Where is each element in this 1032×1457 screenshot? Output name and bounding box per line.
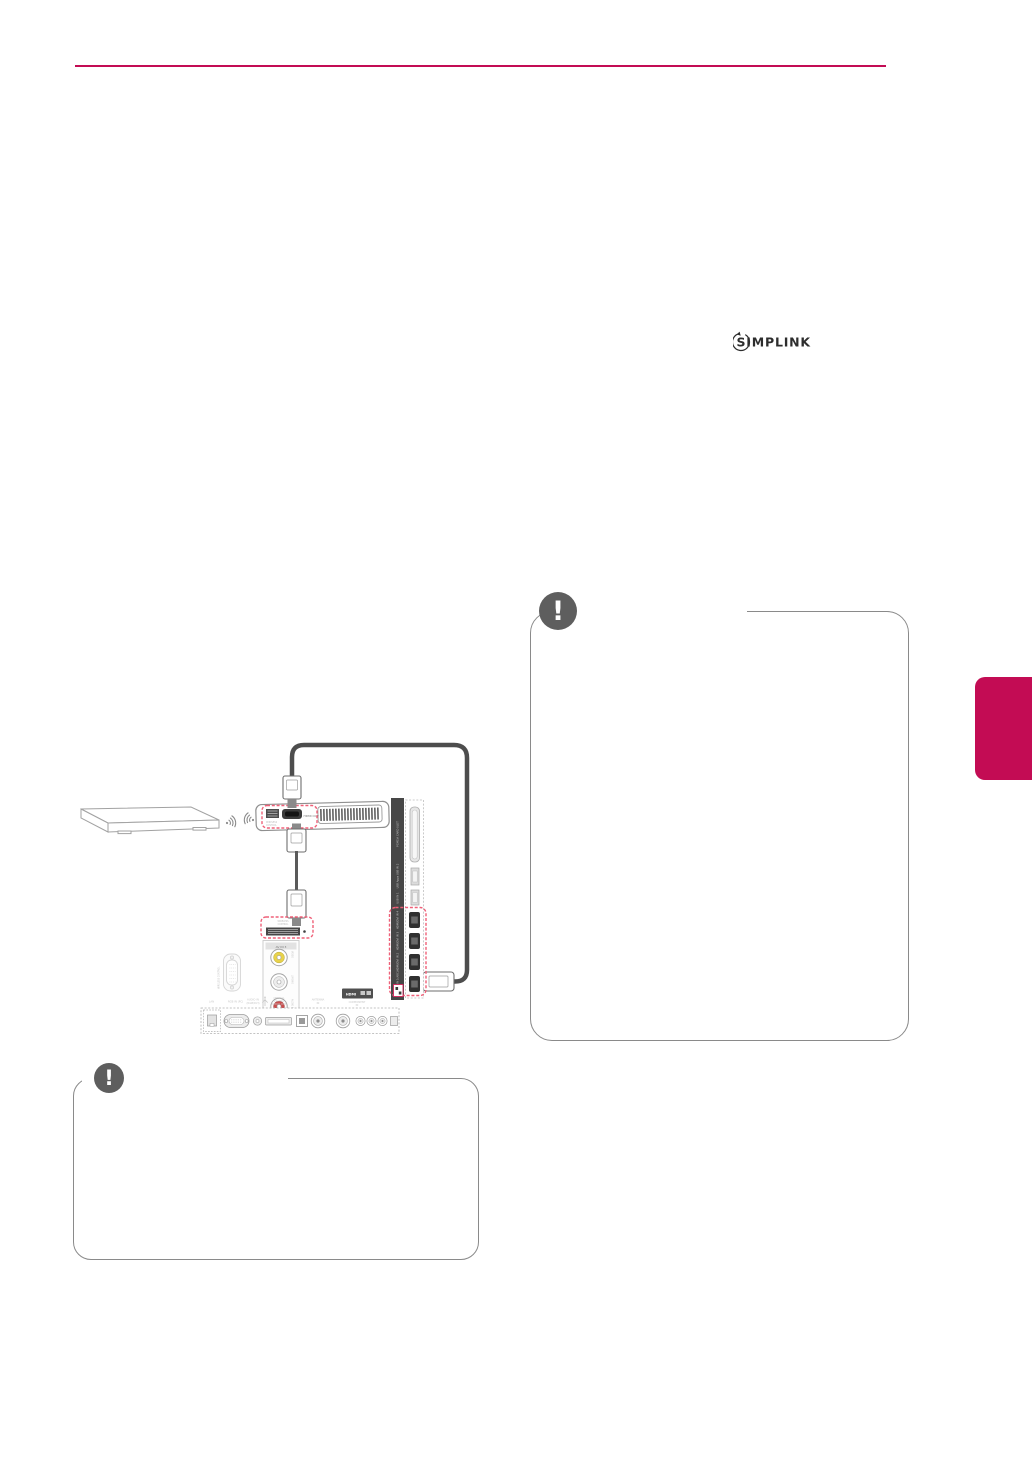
optical-out-port xyxy=(297,1016,308,1027)
wireless-signal-icon xyxy=(224,812,255,828)
component-label-2: IN xyxy=(356,1003,359,1007)
audio-in-label-1: AUDIO IN xyxy=(247,998,259,1002)
hdmi-badge: HDMI xyxy=(342,989,373,999)
lan-label: LAN xyxy=(209,1000,214,1004)
note-box-left xyxy=(73,1078,479,1260)
wireless-control-cable xyxy=(287,824,306,927)
tv-control-label-2: CONTROL xyxy=(278,923,289,926)
dsub-connector: WIRELESS CONTROL xyxy=(218,954,241,991)
component-jacks xyxy=(356,1016,387,1025)
usb-port-1 xyxy=(411,890,419,905)
hdmi4-label: HDMI/DVI IN 4 xyxy=(396,910,400,929)
hdmi-in-3-port xyxy=(409,933,420,949)
connection-diagram: WIRELESS CONTROL HDMI OUT xyxy=(60,730,480,1050)
note-box-right xyxy=(530,611,909,1041)
hdmi-badge-label: HDMI xyxy=(346,993,356,997)
pcmcia-label: PCMCIA CARD SLOT xyxy=(396,821,400,847)
tv-side-panel: PCMCIA CARD SLOT USB Apps USB IN 2 USB I… xyxy=(390,798,427,1000)
audio-in-label-2: (RGB/DVI) xyxy=(247,1001,260,1005)
dsub-label: WIRELESS CONTROL xyxy=(218,966,221,989)
box-control-label-2: CONTROL xyxy=(266,824,277,827)
audio-left-label: L/MONO xyxy=(291,975,294,984)
hdmi2-label: HDMI/DVI IN 2 xyxy=(396,952,400,971)
simplink-text: SIMPLINK xyxy=(737,335,812,350)
optical-label-3: AUDIO OUT xyxy=(272,1002,287,1006)
video-jack-label: VIDEO xyxy=(291,951,294,958)
exclamation-note-icon: ! xyxy=(539,592,577,630)
simplink-logo: SIMPLINK xyxy=(733,329,823,355)
hdmi3-label: HDMI/DVI IN 3 xyxy=(396,931,400,950)
exclamation-note-icon: ! xyxy=(94,1063,124,1093)
manual-page: SIMPLINK xyxy=(0,0,1032,1457)
wireless-media-box: WIRELESS CONTROL HDMI OUT xyxy=(256,801,390,830)
audio-right-label: AUDIO R xyxy=(291,999,294,1009)
hdmi-in-2-port xyxy=(409,954,420,970)
service-slot xyxy=(266,1018,292,1026)
av-in-3-label: AV IN 3 xyxy=(276,945,287,949)
page-ref-icon xyxy=(394,985,404,997)
rgb-label: RGB IN (PC) xyxy=(228,1000,243,1004)
usb1-label: USB IN 1 xyxy=(396,892,400,904)
usb-port-2 xyxy=(411,868,419,885)
audio-left-jack xyxy=(271,974,287,990)
hdmi-cable xyxy=(292,745,467,982)
tv-wireless-control-port: WIRELESS CONTROL xyxy=(261,917,313,938)
player-device xyxy=(81,807,219,834)
video-jack xyxy=(271,949,287,965)
antenna-label-2: IN xyxy=(317,1001,320,1005)
pcmcia-slot xyxy=(410,807,420,862)
component-video-jack xyxy=(336,1014,350,1028)
hdmi-in-1-port xyxy=(409,976,420,992)
usb2-label: USB Apps USB IN 2 xyxy=(396,863,400,888)
misc-port xyxy=(391,1017,398,1026)
chapter-edge-tab xyxy=(975,677,1032,780)
vga-port xyxy=(224,1015,249,1028)
antenna-in-jack xyxy=(311,1014,325,1028)
hdmi-in-4-port xyxy=(409,912,420,928)
top-rule xyxy=(75,65,886,67)
audio-in-jack xyxy=(253,1017,261,1025)
antenna-label-1: ANTENNA xyxy=(312,998,325,1002)
tv-bottom-panel: LAN RGB IN (PC) AUDIO IN (RGB/DVI) OPTIC… xyxy=(201,985,403,1034)
